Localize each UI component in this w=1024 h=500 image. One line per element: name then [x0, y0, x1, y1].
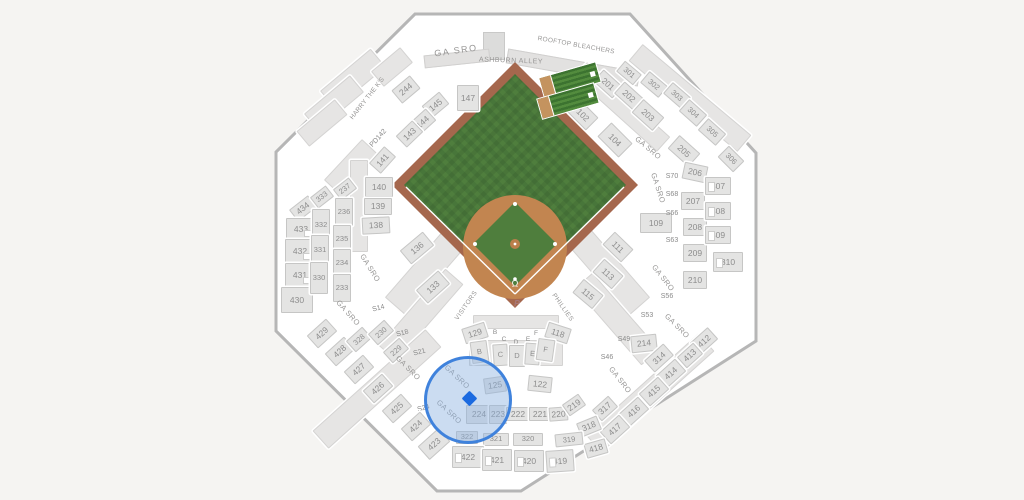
section-label: 304: [686, 106, 700, 120]
section-label: B: [476, 348, 482, 356]
section-label: 220: [551, 409, 566, 418]
section-label: 205: [676, 143, 692, 159]
section-label: 210: [688, 276, 702, 285]
section-label: 234: [336, 259, 349, 267]
section-147[interactable]: 147: [457, 85, 479, 111]
section-label: F: [534, 331, 538, 338]
phillies-logo: P: [514, 300, 520, 309]
section-label: 214: [637, 338, 652, 348]
section-label: 233: [336, 284, 349, 292]
section-138[interactable]: 138: [362, 216, 391, 234]
section-209[interactable]: 209: [683, 244, 707, 262]
section-214[interactable]: 214: [630, 333, 658, 353]
section-label: 434: [295, 200, 311, 215]
section-label: 136: [409, 240, 425, 256]
section-430[interactable]: 430: [281, 287, 313, 313]
section-label: 426: [370, 380, 386, 396]
section-140[interactable]: 140: [365, 177, 393, 197]
section-label: 305: [705, 125, 719, 139]
seating-chart-canvas: 4344334324314303333323313302372362352342…: [0, 0, 1024, 500]
section-label: S70: [666, 173, 678, 180]
section-319[interactable]: 319: [554, 431, 583, 447]
section-label: S46: [601, 354, 613, 361]
section-label: 333: [315, 190, 329, 204]
section-label: C: [502, 337, 507, 344]
section-label: 331: [314, 246, 327, 254]
suite-d[interactable]: D: [509, 345, 525, 367]
section-308[interactable]: 308: [705, 202, 731, 220]
section-label: 332: [315, 221, 328, 229]
section-label: 201: [600, 76, 616, 92]
section-label: S21: [412, 347, 426, 357]
section-label: D: [514, 352, 519, 360]
section-420[interactable]: 420: [514, 450, 544, 472]
first-base: [553, 242, 557, 246]
section-207[interactable]: 207: [681, 192, 705, 210]
section-label: 113: [600, 266, 616, 281]
section-label: 421: [490, 456, 504, 465]
section-label: 428: [332, 343, 348, 359]
section-label: 433: [294, 225, 308, 234]
section-label: S49: [618, 336, 630, 343]
second-base: [513, 202, 517, 206]
section-label: 141: [374, 152, 390, 168]
section-label: 412: [696, 333, 712, 349]
section-s63[interactable]: S63: [665, 236, 680, 245]
section-label: 432: [293, 247, 307, 256]
section-label: 133: [425, 279, 441, 295]
section-122[interactable]: 122: [527, 375, 553, 393]
section-label: 422: [461, 453, 475, 462]
section-330[interactable]: 330: [310, 262, 328, 294]
section-320[interactable]: 320: [513, 433, 543, 446]
section-label: 209: [688, 249, 702, 258]
section-s49[interactable]: S49: [617, 335, 632, 344]
section-236[interactable]: 236: [335, 198, 353, 226]
section-label: 207: [686, 197, 700, 206]
section-label: 203: [640, 107, 656, 123]
section-label: 118: [550, 327, 566, 339]
section-label: 310: [721, 258, 735, 267]
section-label: 208: [688, 223, 702, 232]
section-label: 431: [293, 271, 307, 280]
section-label: S68: [666, 191, 678, 198]
section-label: 320: [522, 435, 535, 443]
section-label: 206: [687, 166, 703, 177]
section-label: 423: [426, 436, 442, 452]
section-139[interactable]: 139: [364, 198, 392, 215]
section-label: 420: [522, 457, 536, 466]
section-421[interactable]: 421: [482, 449, 512, 471]
section-label: 235: [336, 235, 349, 243]
section-label: 147: [461, 94, 475, 103]
section-label: 302: [647, 77, 661, 91]
section-label: 109: [649, 219, 663, 228]
section-label: 140: [372, 183, 386, 192]
section-label: S14: [371, 303, 385, 313]
section-s68[interactable]: S68: [665, 190, 680, 199]
section-label: 419: [553, 456, 568, 465]
section-419[interactable]: 419: [545, 449, 574, 473]
section-label: 237: [338, 182, 352, 196]
section-label: 139: [371, 202, 385, 211]
section-label: 328: [352, 332, 366, 346]
section-label: 424: [408, 418, 424, 434]
section-label: 104: [607, 132, 623, 148]
section-s70[interactable]: S70: [665, 172, 680, 181]
section-label: 244: [398, 81, 414, 97]
suite-c[interactable]: C: [492, 344, 508, 367]
section-label: 306: [724, 152, 738, 166]
section-label: 415: [646, 383, 662, 399]
section-label: 143: [401, 126, 417, 142]
section-label: 230: [374, 325, 388, 339]
section-label: 427: [351, 361, 367, 377]
section-label: S53: [641, 312, 653, 319]
section-label: F: [542, 346, 548, 354]
section-label: 330: [313, 274, 326, 282]
section-label: 301: [622, 66, 636, 80]
section-label: 418: [588, 442, 604, 454]
section-s56[interactable]: S56: [660, 292, 675, 301]
section-label: E: [529, 350, 535, 358]
mound-rubber: [514, 243, 517, 246]
section-label: 319: [562, 435, 575, 444]
section-label: 309: [711, 231, 725, 240]
section-s46[interactable]: S46: [600, 353, 615, 362]
section-label: S18: [395, 328, 409, 338]
section-label: S63: [666, 237, 678, 244]
section-s53[interactable]: S53: [640, 311, 655, 320]
section-label: S66: [666, 210, 678, 217]
section-label: 314: [651, 350, 667, 366]
section-label: B: [493, 330, 497, 337]
section-331[interactable]: 331: [311, 235, 329, 265]
section-label: 236: [338, 208, 351, 216]
section-208[interactable]: 208: [683, 218, 707, 236]
section-234[interactable]: 234: [333, 249, 351, 277]
section-307[interactable]: 307: [705, 177, 731, 195]
section-label: 111: [610, 239, 625, 254]
section-label: 145: [427, 97, 443, 113]
suite-f-upper[interactable]: F: [532, 330, 540, 338]
section-label: 414: [663, 365, 679, 381]
section-s66[interactable]: S66: [665, 209, 680, 218]
section-label: 430: [290, 296, 304, 305]
section-label: 303: [670, 88, 684, 102]
section-label: 138: [369, 220, 384, 229]
section-label: 417: [607, 421, 623, 437]
third-base: [473, 242, 477, 246]
section-label: 429: [314, 325, 330, 341]
section-422[interactable]: 422: [452, 446, 484, 468]
section-233[interactable]: 233: [333, 274, 351, 302]
section-label: C: [497, 351, 503, 359]
section-label: 425: [389, 400, 405, 416]
home-plate-bell: Ω: [512, 280, 519, 289]
section-309[interactable]: 309: [705, 226, 731, 244]
section-label: 221: [533, 410, 547, 419]
section-label: 416: [626, 403, 642, 419]
section-210[interactable]: 210: [683, 271, 707, 289]
baseball-field: [0, 0, 1024, 500]
section-label: 129: [467, 327, 483, 339]
section-label: 222: [511, 410, 525, 419]
section-label: 122: [533, 379, 548, 389]
section-label: 202: [621, 88, 637, 104]
section-label: 115: [580, 286, 596, 301]
section-310[interactable]: 310: [713, 252, 743, 272]
suite-b-upper[interactable]: B: [491, 329, 499, 337]
section-label: 318: [581, 419, 597, 432]
section-label: S56: [661, 293, 673, 300]
suite-f[interactable]: F: [535, 338, 555, 362]
section-label: 308: [711, 207, 725, 216]
section-label: 307: [711, 182, 725, 191]
